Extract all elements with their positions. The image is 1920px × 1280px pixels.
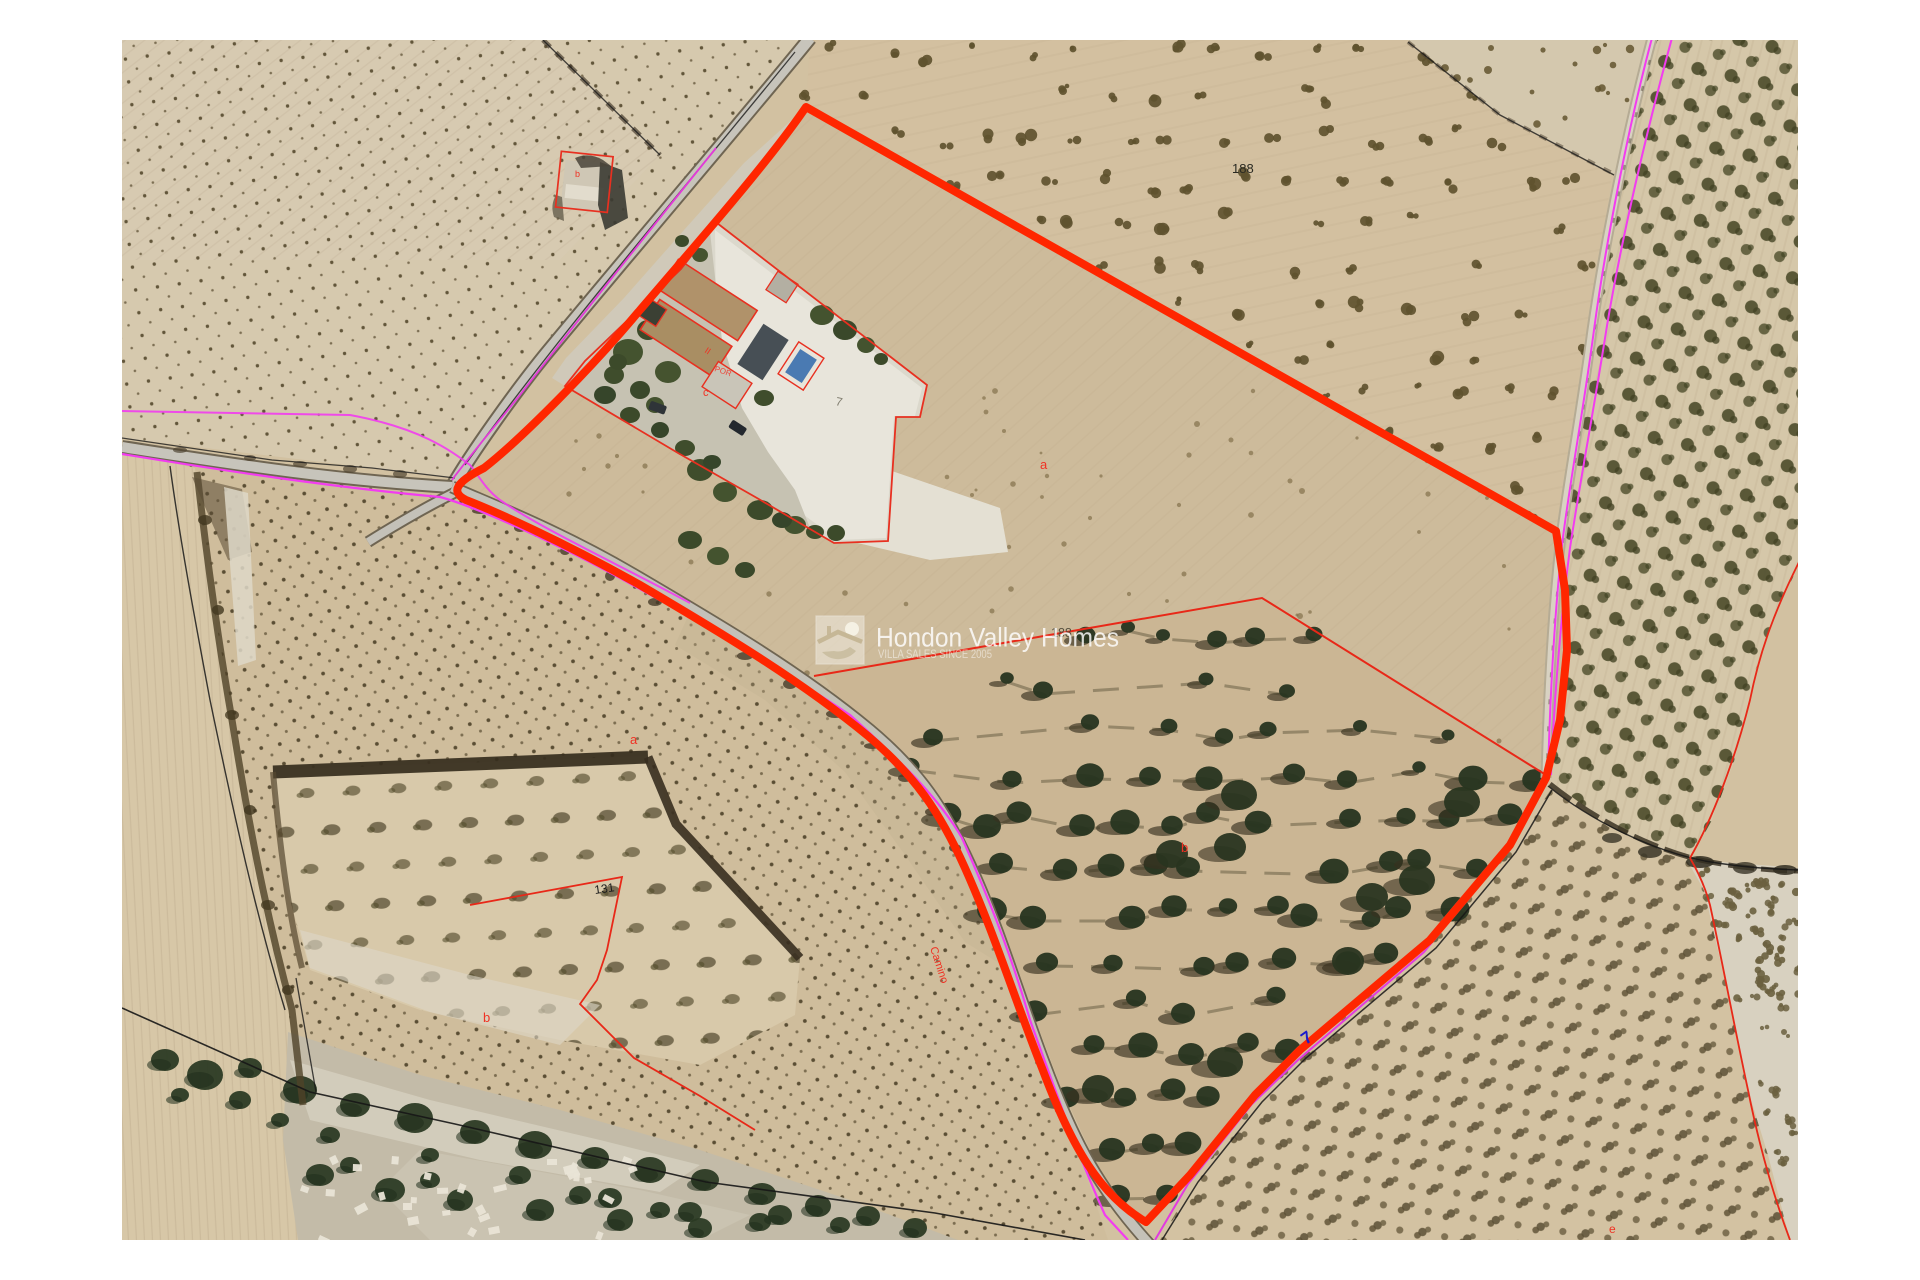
svg-text:c: c (703, 387, 709, 399)
svg-text:131: 131 (593, 880, 615, 897)
svg-text:b: b (575, 169, 580, 179)
svg-text:b: b (483, 1010, 490, 1025)
svg-text:a: a (1040, 457, 1048, 472)
svg-text:a: a (630, 732, 638, 747)
svg-text:b: b (1181, 840, 1188, 855)
svg-text:188: 188 (1232, 161, 1254, 176)
svg-text:e: e (1609, 1222, 1616, 1236)
svg-text:VILLA SALES SINCE 2005: VILLA SALES SINCE 2005 (878, 647, 992, 661)
